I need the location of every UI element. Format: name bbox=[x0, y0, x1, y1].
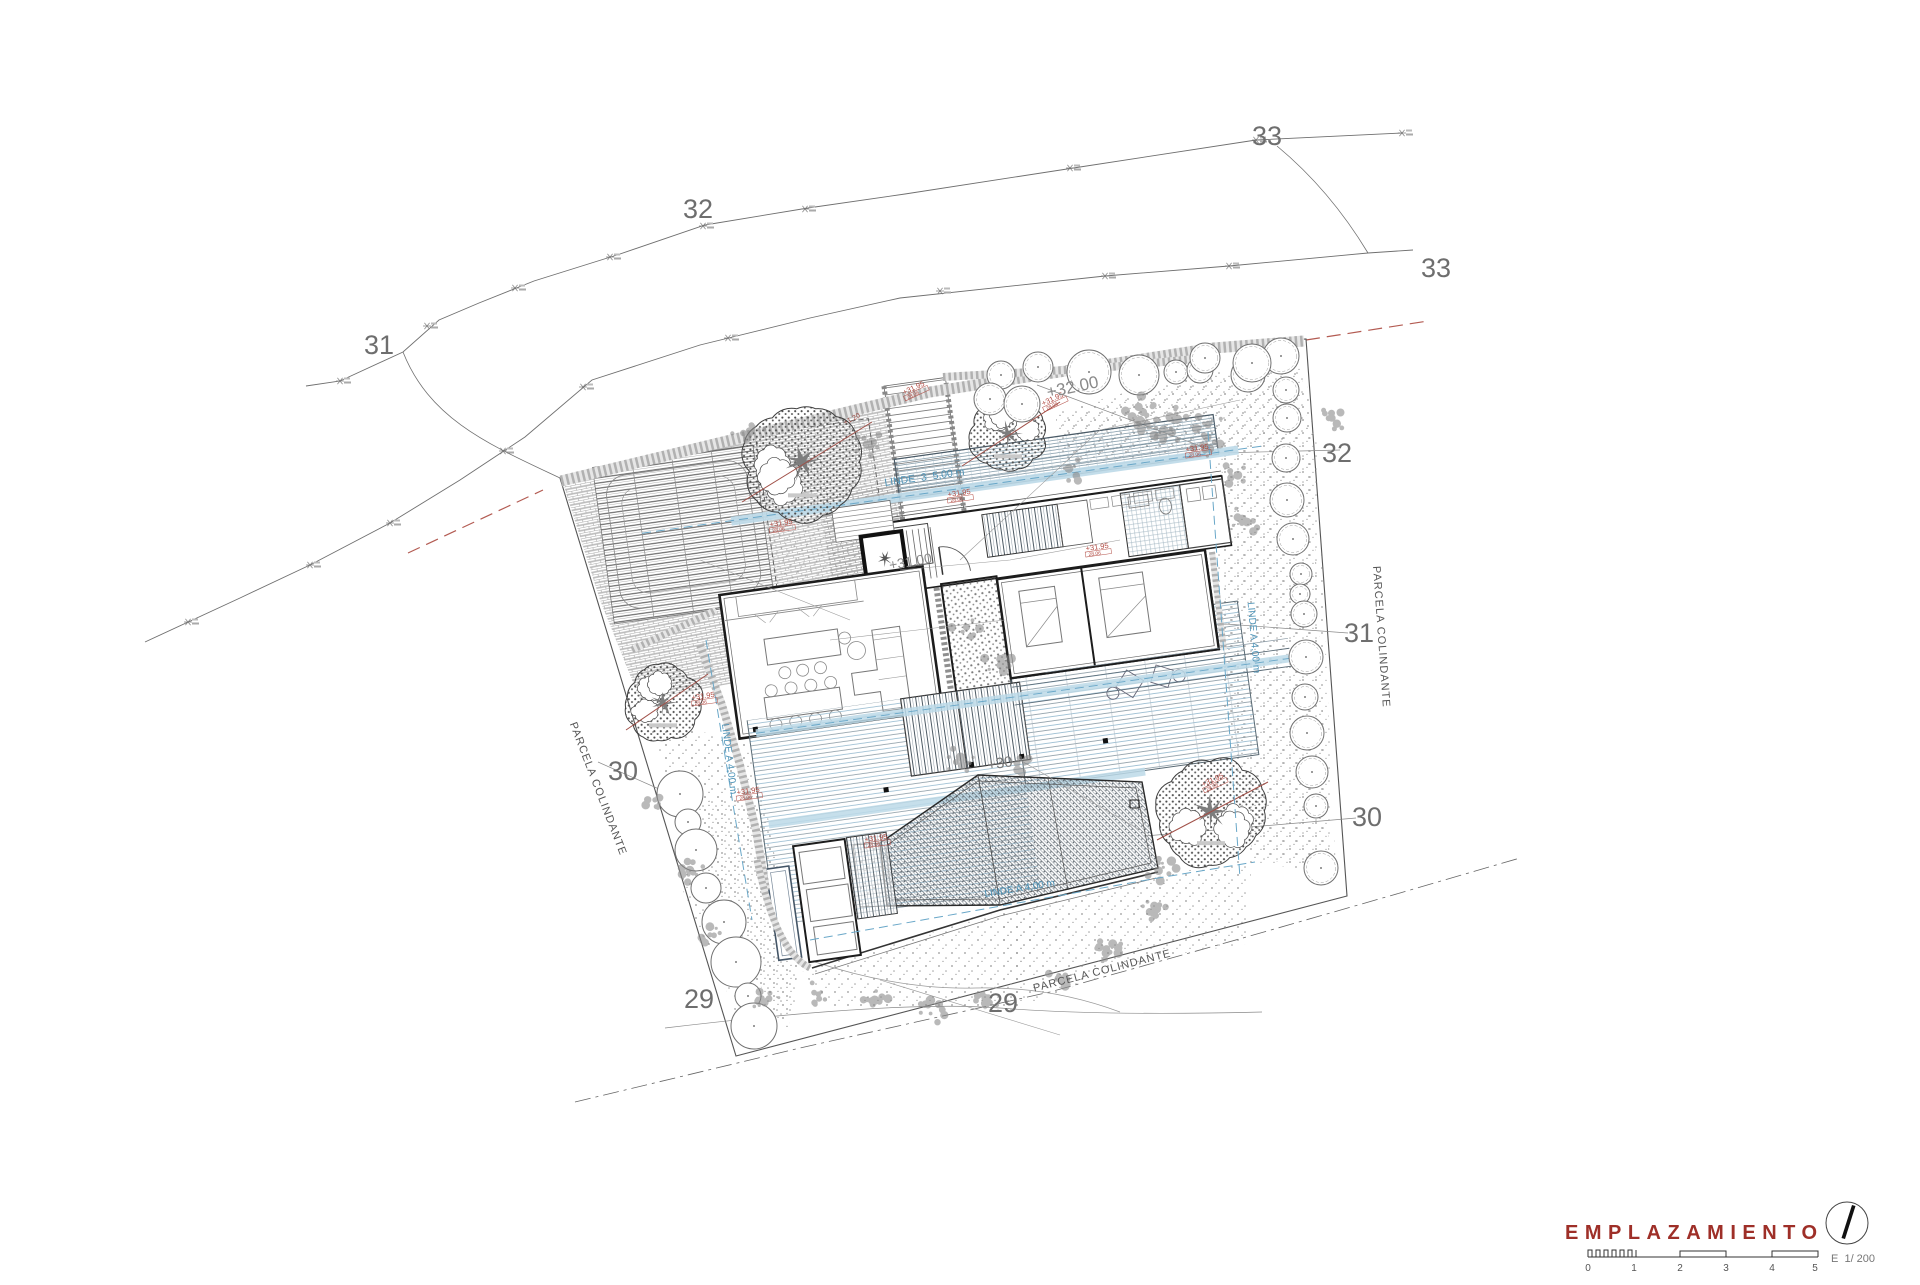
svg-text:30: 30 bbox=[608, 756, 638, 786]
svg-text:28.06: 28.06 bbox=[694, 699, 707, 707]
svg-text:29: 29 bbox=[988, 988, 1018, 1018]
svg-text:29: 29 bbox=[684, 984, 714, 1014]
svg-text:33: 33 bbox=[1421, 253, 1451, 283]
svg-text:3: 3 bbox=[1723, 1263, 1729, 1274]
svg-text:EMPLAZAMIENTO: EMPLAZAMIENTO bbox=[1565, 1222, 1824, 1244]
svg-text:1: 1 bbox=[1631, 1263, 1637, 1274]
svg-text:2: 2 bbox=[1677, 1263, 1683, 1274]
svg-text:4: 4 bbox=[1769, 1263, 1775, 1274]
svg-text:31: 31 bbox=[1344, 618, 1374, 648]
svg-text:33: 33 bbox=[1252, 121, 1282, 151]
svg-text:E 1/ 200: E 1/ 200 bbox=[1831, 1253, 1875, 1265]
svg-text:PARCELA COLINDANTE: PARCELA COLINDANTE bbox=[567, 721, 629, 858]
svg-text:32: 32 bbox=[683, 194, 713, 224]
svg-text:5: 5 bbox=[1812, 1263, 1818, 1274]
svg-text:30: 30 bbox=[1352, 802, 1382, 832]
svg-text:31: 31 bbox=[364, 330, 394, 360]
svg-text:32: 32 bbox=[1322, 438, 1352, 468]
svg-text:0: 0 bbox=[1585, 1263, 1591, 1274]
